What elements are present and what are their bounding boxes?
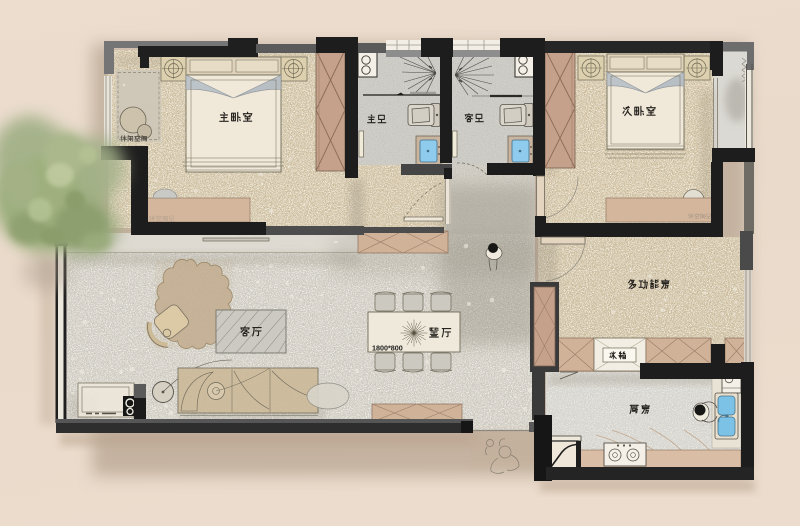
svg-text:1800*800: 1800*800 (372, 344, 403, 353)
